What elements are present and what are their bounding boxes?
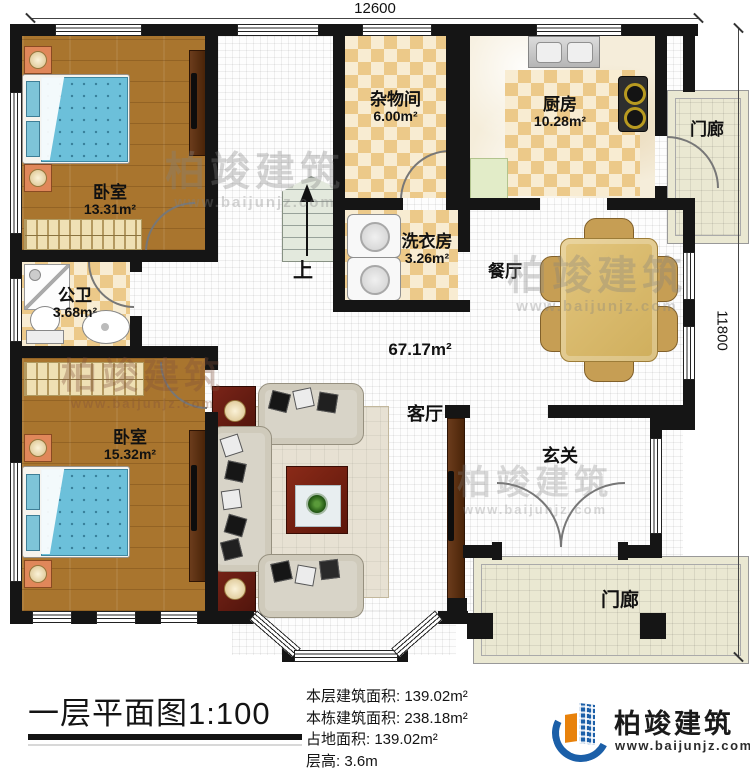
sink-basin	[567, 42, 593, 63]
wardrobe-rod	[25, 235, 141, 236]
room-label-bathroom: 公卫 3.68m²	[35, 286, 115, 321]
porch-column	[640, 613, 666, 639]
stairs-arrow-head	[300, 184, 314, 202]
dining-table	[560, 238, 658, 362]
coffee-table	[286, 466, 348, 534]
nightstand	[24, 434, 52, 462]
door-post	[618, 542, 628, 560]
tv	[191, 465, 197, 531]
room-label-living: 客厅	[385, 404, 465, 424]
window	[650, 438, 662, 534]
dimension-width-label: 12600	[275, 0, 475, 17]
room-label-bedroom1: 卧室 13.31m²	[55, 183, 165, 218]
wall	[655, 186, 667, 198]
wall	[130, 316, 142, 346]
wall	[548, 405, 683, 418]
wall	[607, 198, 695, 210]
room-label-bedroom2: 卧室 15.32m²	[75, 428, 185, 463]
window	[10, 92, 22, 234]
wardrobe	[24, 219, 142, 250]
toilet-tank	[26, 330, 64, 344]
title-underline-light	[28, 744, 302, 746]
cushion	[294, 564, 316, 586]
window	[362, 24, 432, 36]
logo-building-orange-icon	[565, 713, 577, 743]
wall	[333, 300, 470, 312]
bed	[22, 74, 130, 164]
window	[683, 326, 695, 380]
title-underline	[28, 734, 302, 740]
company-name: 柏竣建筑	[614, 702, 734, 741]
wall	[683, 210, 695, 418]
wall	[683, 24, 695, 92]
cushion	[317, 392, 339, 414]
title-block: 一层平面图1:100 本层建筑面积: 139.02m² 本栋建筑面积: 238.…	[0, 688, 750, 780]
burner	[624, 107, 646, 129]
stairs-up-label: 上	[288, 260, 318, 282]
window	[55, 24, 142, 36]
dimension-width-line	[30, 18, 698, 19]
wall	[438, 611, 468, 624]
lamp	[224, 578, 246, 600]
kitchen-sink	[528, 36, 600, 68]
wall	[205, 412, 218, 611]
nightstand	[24, 46, 52, 74]
window	[96, 611, 136, 624]
window	[237, 24, 319, 36]
bed	[22, 466, 130, 558]
company-logo: 柏竣建筑 www.baijunjz.com	[552, 694, 748, 774]
window	[160, 611, 198, 624]
wall	[205, 24, 218, 262]
washer-drum	[360, 265, 390, 295]
cushion	[319, 559, 340, 580]
lamp	[29, 565, 47, 583]
tv-cabinet	[189, 50, 206, 156]
pillow	[26, 515, 40, 551]
wall	[446, 24, 470, 210]
wall	[623, 545, 662, 558]
cushion	[224, 460, 247, 483]
wall	[458, 198, 540, 210]
cushion	[221, 489, 242, 510]
window	[10, 278, 22, 342]
porch-column	[467, 613, 493, 639]
tv	[448, 471, 454, 541]
hall-area-label: 67.17m²	[365, 340, 475, 359]
wall	[218, 611, 254, 624]
floor-plan-canvas: 12600 11800	[0, 0, 750, 680]
stairs-arrow	[306, 198, 308, 256]
stat-row: 本层建筑面积: 139.02m²	[306, 686, 468, 708]
nightstand	[24, 164, 52, 192]
room-label-foyer: 玄关	[520, 446, 600, 466]
nightstand	[24, 560, 52, 588]
plan-title-text: 一层平面图	[28, 696, 188, 731]
lamp	[224, 400, 246, 422]
plan-scale: 1:100	[188, 696, 271, 731]
window	[536, 24, 622, 36]
window	[683, 252, 695, 300]
cushion	[270, 560, 293, 583]
kitchen-counter	[470, 158, 508, 200]
wall	[205, 358, 218, 370]
pillow	[26, 81, 40, 117]
lamp	[29, 51, 47, 69]
shower-head	[29, 269, 41, 281]
dimension-height-line	[738, 28, 739, 658]
wall	[333, 198, 403, 210]
plan-title: 一层平面图1:100	[28, 688, 271, 733]
wall	[333, 24, 345, 312]
tv-wall-cabinet	[447, 418, 465, 600]
room-label-porch-bottom: 门廊	[535, 590, 705, 611]
pillow	[26, 121, 40, 157]
wall	[10, 250, 218, 262]
dimension-height-label: 11800	[714, 301, 731, 361]
logo-building-blue-icon	[579, 703, 595, 745]
room-label-storage: 杂物间 6.00m²	[345, 90, 446, 125]
cushion	[292, 387, 315, 410]
wall	[655, 24, 667, 136]
room-label-porch-top: 门廊	[667, 120, 747, 139]
pillow	[26, 474, 40, 510]
room-label-laundry: 洗衣房 3.26m²	[392, 232, 462, 267]
company-website: www.baijunjz.com	[615, 738, 750, 753]
door-post	[492, 542, 502, 560]
area-statistics: 本层建筑面积: 139.02m² 本栋建筑面积: 238.18m² 占地面积: …	[306, 686, 468, 772]
sink-basin	[536, 42, 562, 63]
wall	[10, 346, 218, 358]
window	[32, 611, 72, 624]
lamp	[29, 169, 47, 187]
wardrobe	[24, 362, 144, 396]
stat-row: 占地面积: 139.02m²	[306, 729, 468, 751]
drain	[101, 323, 109, 331]
lamp	[29, 439, 47, 457]
burner	[624, 83, 646, 105]
wall	[130, 262, 142, 272]
stat-row: 本栋建筑面积: 238.18m²	[306, 708, 468, 730]
room-label-dining: 餐厅	[475, 262, 535, 281]
plant	[308, 495, 326, 513]
stat-row: 层高: 3.6m	[306, 751, 468, 773]
window	[10, 462, 22, 582]
washer-drum	[360, 222, 390, 252]
bay-window	[294, 650, 398, 662]
tv	[191, 73, 197, 129]
wardrobe-rod	[25, 379, 143, 380]
room-label-kitchen: 厨房 10.28m²	[495, 95, 625, 130]
tv-cabinet	[189, 430, 206, 582]
